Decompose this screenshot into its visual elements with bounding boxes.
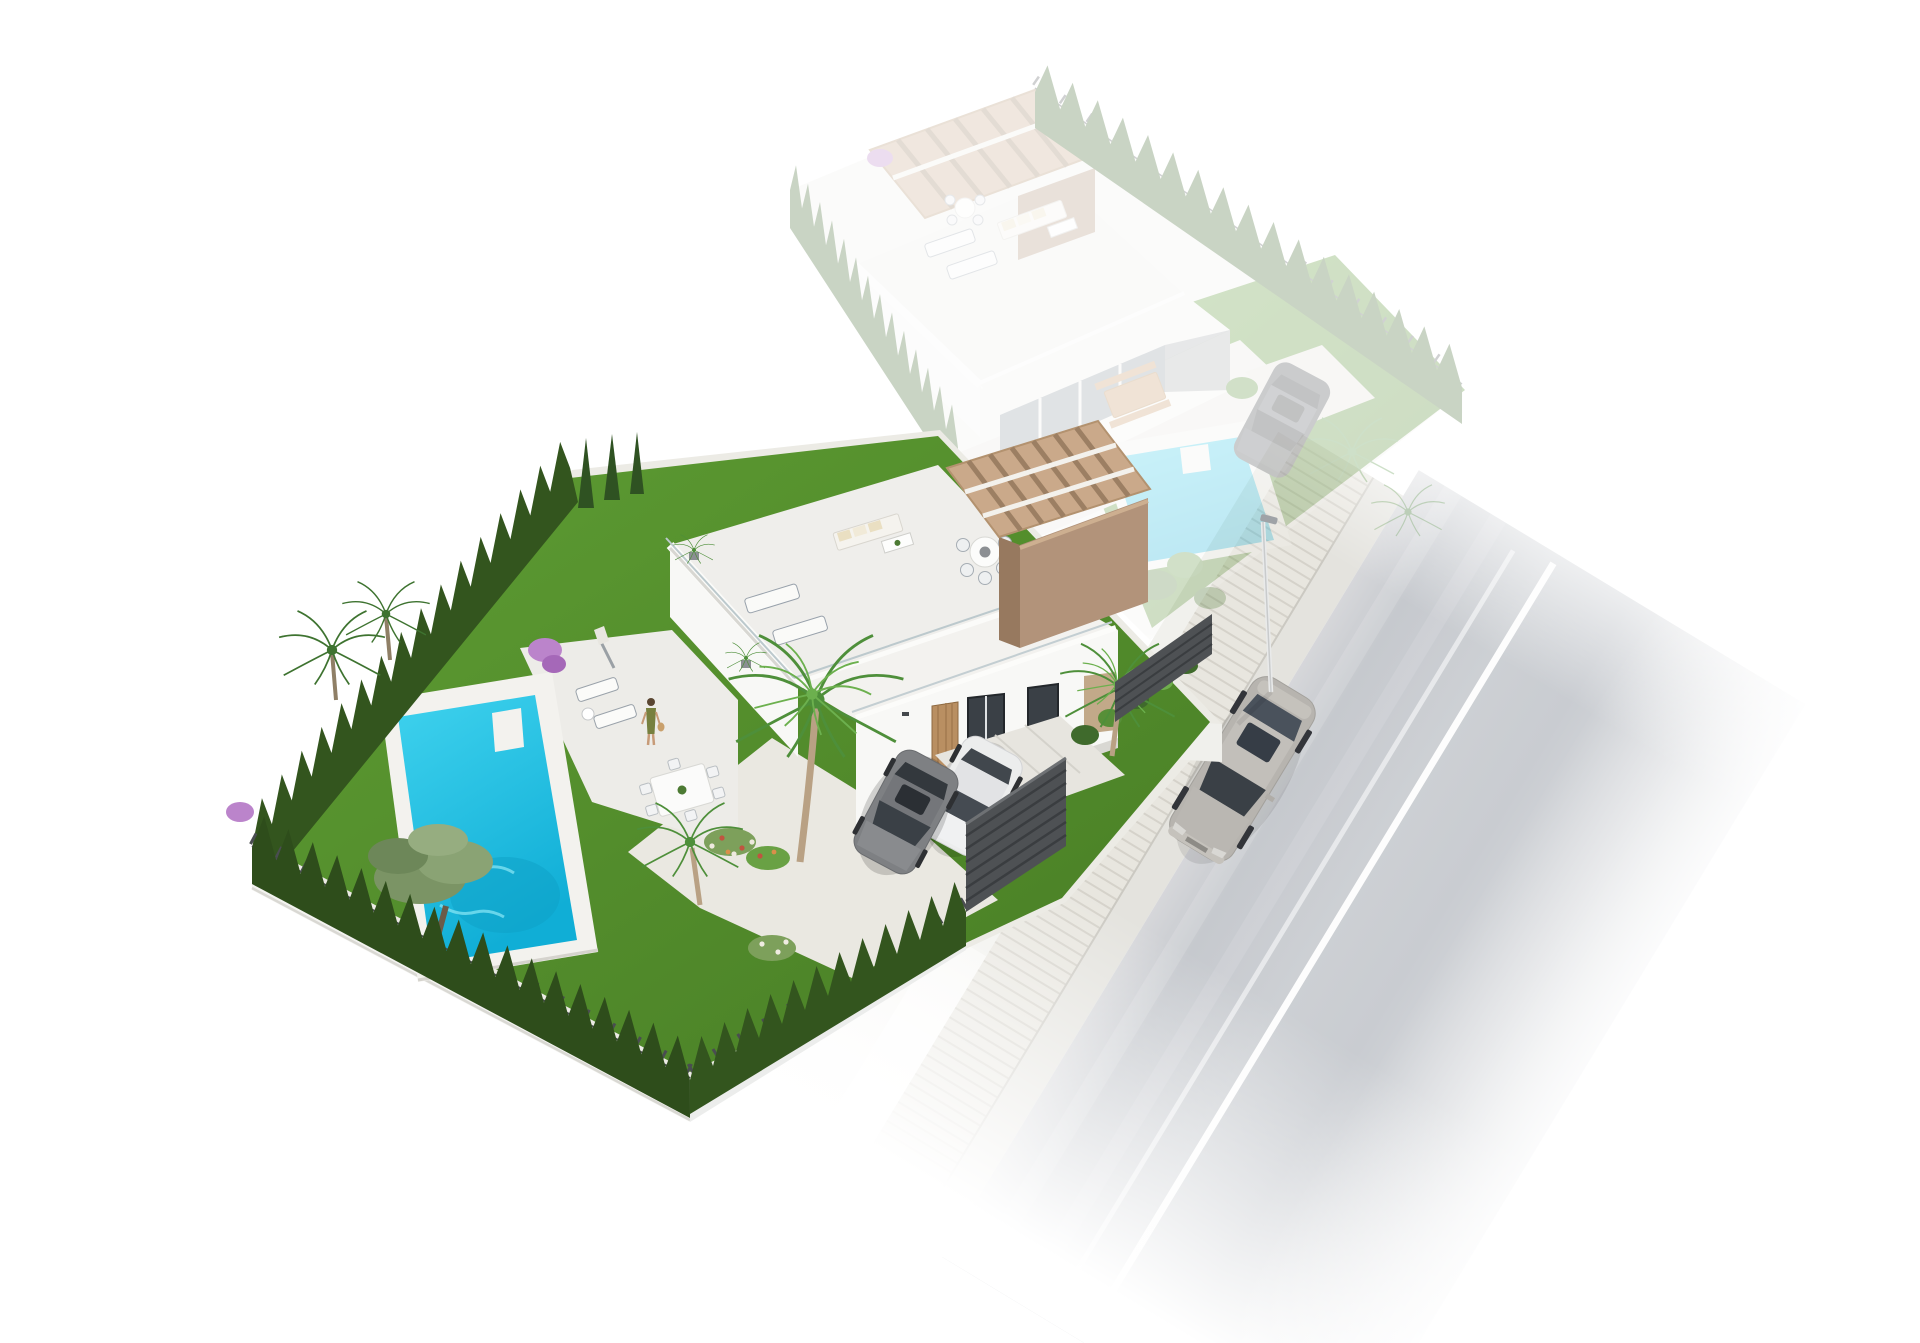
table-tray	[980, 547, 991, 558]
ghost-bougainvillea	[867, 149, 893, 167]
dress	[646, 708, 656, 734]
pergola-stair-wall-side	[999, 537, 1020, 648]
architectural-render	[0, 0, 1920, 1343]
pool-step	[492, 708, 524, 752]
side-table	[582, 708, 594, 720]
ghost-pool-step	[1180, 444, 1211, 474]
render-canvas	[0, 0, 1920, 1343]
hair	[647, 698, 655, 706]
wall-sconce	[902, 712, 909, 716]
beach-bag	[658, 723, 665, 732]
ghost-round-table	[955, 198, 975, 218]
